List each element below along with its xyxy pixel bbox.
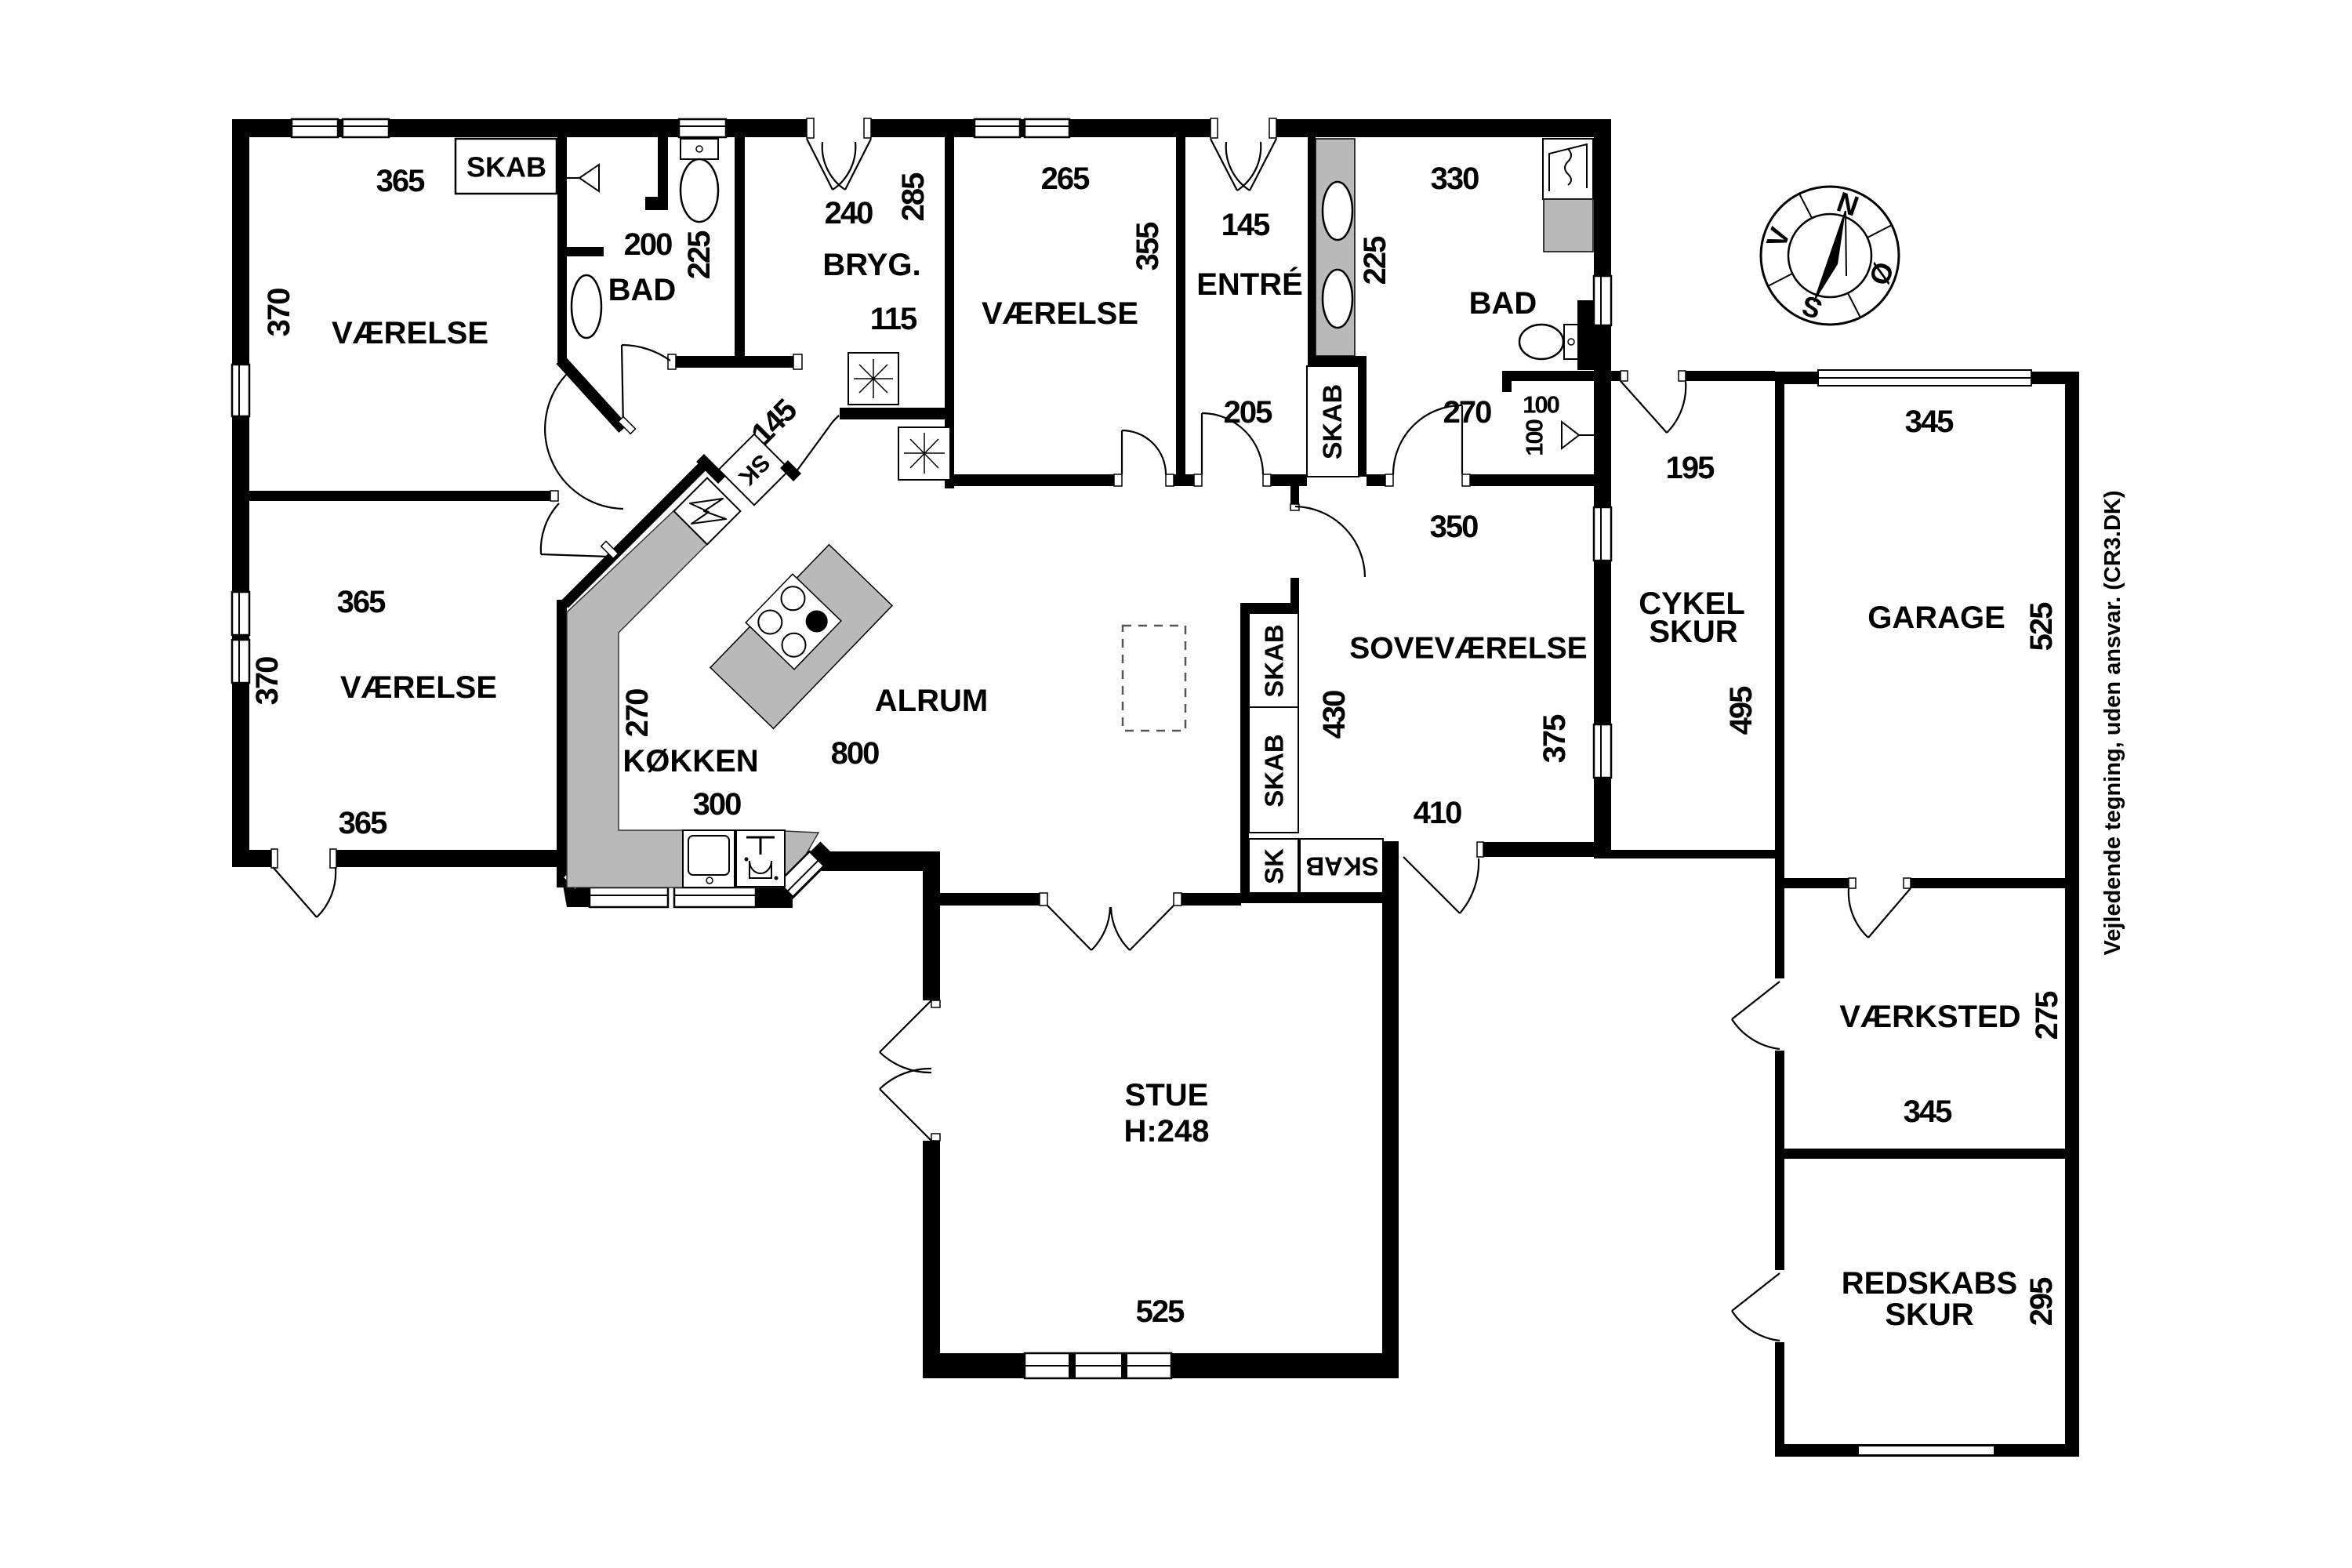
svg-text:SKAB: SKAB — [1305, 852, 1379, 881]
svg-text:365: 365 — [339, 806, 387, 840]
svg-text:VÆRELSE: VÆRELSE — [982, 296, 1138, 331]
svg-text:H:248: H:248 — [1124, 1114, 1210, 1149]
svg-text:Vejledende tegning, uden ansva: Vejledende tegning, uden ansvar. (CR3.DK… — [2100, 490, 2125, 955]
svg-text:330: 330 — [1431, 162, 1479, 196]
svg-text:355: 355 — [1131, 222, 1165, 270]
svg-text:145: 145 — [1221, 208, 1270, 242]
svg-text:REDSKABS: REDSKABS — [1842, 1266, 2017, 1301]
svg-text:GARAGE: GARAGE — [1867, 601, 2005, 635]
svg-text:ENTRÉ: ENTRÉ — [1196, 267, 1303, 302]
svg-text:350: 350 — [1430, 510, 1478, 544]
svg-text:495: 495 — [1724, 686, 1759, 735]
svg-text:100: 100 — [1521, 419, 1548, 456]
svg-text:345: 345 — [1905, 405, 1954, 439]
svg-text:100: 100 — [1523, 391, 1559, 419]
svg-text:430: 430 — [1317, 691, 1352, 739]
svg-text:265: 265 — [1041, 162, 1090, 196]
svg-text:KØKKEN: KØKKEN — [622, 744, 758, 779]
svg-text:SKUR: SKUR — [1885, 1298, 1973, 1332]
svg-text:365: 365 — [376, 164, 425, 198]
svg-text:270: 270 — [1443, 395, 1491, 430]
svg-text:BAD: BAD — [608, 273, 677, 307]
svg-text:SKAB: SKAB — [1318, 384, 1348, 459]
svg-text:225: 225 — [1358, 236, 1392, 285]
svg-text:BAD: BAD — [1469, 286, 1537, 321]
svg-text:375: 375 — [1537, 714, 1572, 763]
svg-text:ALRUM: ALRUM — [875, 684, 988, 718]
svg-text:225: 225 — [682, 230, 717, 279]
svg-text:410: 410 — [1414, 796, 1461, 830]
svg-text:205: 205 — [1224, 395, 1272, 430]
svg-text:525: 525 — [1136, 1294, 1185, 1329]
svg-text:195: 195 — [1666, 451, 1715, 485]
svg-text:VÆRELSE: VÆRELSE — [340, 670, 497, 705]
svg-text:370: 370 — [250, 657, 285, 705]
svg-text:SKAB: SKAB — [1260, 734, 1289, 808]
svg-text:SKUR: SKUR — [1649, 615, 1737, 649]
svg-text:240: 240 — [825, 196, 873, 230]
svg-text:285: 285 — [896, 172, 931, 221]
svg-text:STUE: STUE — [1125, 1078, 1209, 1112]
svg-text:SKAB: SKAB — [466, 151, 546, 183]
svg-text:200: 200 — [624, 227, 672, 262]
svg-text:VÆRKSTED: VÆRKSTED — [1839, 1000, 2020, 1034]
svg-text:BRYG.: BRYG. — [822, 248, 920, 282]
svg-text:295: 295 — [2024, 1277, 2059, 1326]
svg-text:VÆRELSE: VÆRELSE — [332, 316, 488, 350]
svg-text:115: 115 — [870, 302, 917, 336]
svg-text:370: 370 — [262, 289, 296, 336]
svg-text:300: 300 — [693, 787, 741, 822]
svg-text:SKAB: SKAB — [1260, 624, 1289, 698]
svg-text:365: 365 — [337, 585, 386, 619]
svg-text:SOVEVÆRELSE: SOVEVÆRELSE — [1349, 632, 1587, 666]
svg-text:525: 525 — [2024, 602, 2059, 651]
svg-text:270: 270 — [620, 689, 655, 737]
svg-text:SK: SK — [1260, 848, 1289, 884]
svg-text:275: 275 — [2030, 991, 2064, 1040]
svg-text:800: 800 — [831, 736, 879, 771]
svg-text:345: 345 — [1904, 1094, 1952, 1129]
